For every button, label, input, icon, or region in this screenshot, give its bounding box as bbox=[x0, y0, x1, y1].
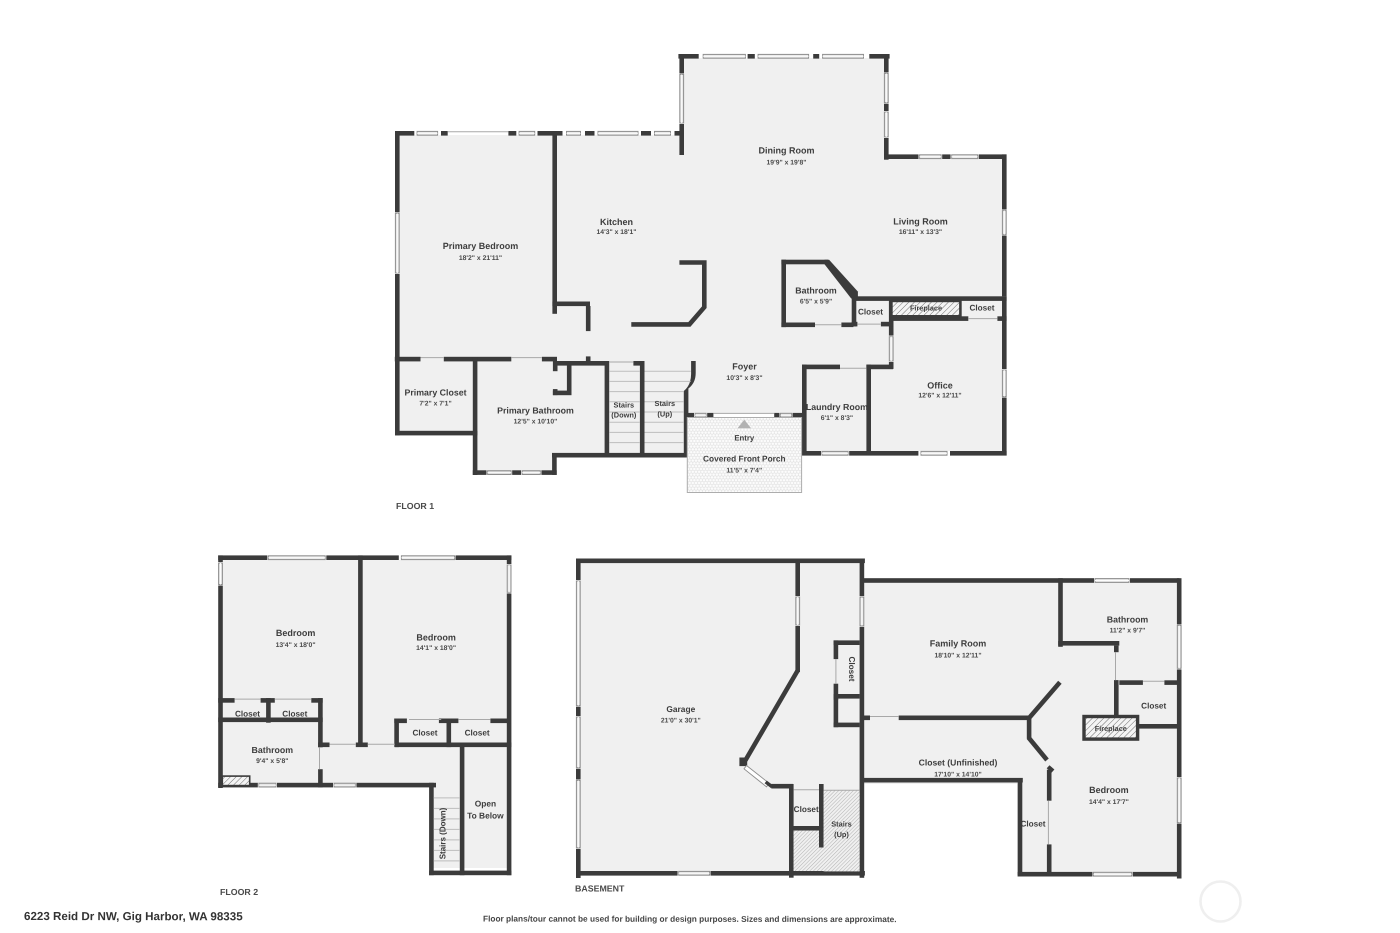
svg-text:(Up): (Up) bbox=[834, 830, 849, 839]
svg-text:Closet: Closet bbox=[235, 709, 260, 718]
svg-text:Closet (Unfinished): Closet (Unfinished) bbox=[919, 757, 998, 767]
svg-text:Closet: Closet bbox=[969, 303, 994, 312]
svg-text:Fireplace: Fireplace bbox=[910, 303, 942, 312]
svg-text:Bedroom: Bedroom bbox=[1089, 785, 1129, 795]
svg-text:Stairs: Stairs bbox=[831, 819, 852, 828]
svg-text:To Below: To Below bbox=[467, 810, 504, 820]
svg-text:11'2" x 9'7": 11'2" x 9'7" bbox=[1110, 627, 1146, 634]
svg-text:Stairs: Stairs bbox=[655, 399, 676, 408]
svg-text:Primary Bedroom: Primary Bedroom bbox=[443, 241, 519, 251]
svg-text:(Up): (Up) bbox=[657, 409, 672, 418]
svg-text:12'6" x 12'11": 12'6" x 12'11" bbox=[918, 392, 961, 399]
svg-text:Entry: Entry bbox=[734, 433, 755, 442]
svg-text:Primary Bathroom: Primary Bathroom bbox=[497, 405, 574, 415]
svg-text:14'4" x 17'7": 14'4" x 17'7" bbox=[1089, 799, 1129, 806]
svg-text:Primary Closet: Primary Closet bbox=[404, 387, 466, 397]
svg-text:Bathroom: Bathroom bbox=[252, 745, 294, 755]
svg-text:Closet: Closet bbox=[1141, 701, 1166, 710]
svg-text:Stairs (Down): Stairs (Down) bbox=[439, 807, 448, 859]
svg-text:6223 Reid Dr NW, Gig Harbor, W: 6223 Reid Dr NW, Gig Harbor, WA 98335 bbox=[24, 910, 243, 923]
svg-text:(Down): (Down) bbox=[611, 410, 637, 419]
svg-text:18'2" x 21'11": 18'2" x 21'11" bbox=[459, 255, 502, 262]
svg-text:Stairs: Stairs bbox=[614, 400, 635, 409]
svg-text:Living Room: Living Room bbox=[893, 216, 948, 226]
svg-text:Bathroom: Bathroom bbox=[1107, 614, 1149, 624]
svg-text:11'5" x 7'4": 11'5" x 7'4" bbox=[726, 467, 762, 474]
svg-text:14'3" x 18'1": 14'3" x 18'1" bbox=[597, 229, 637, 236]
svg-text:6'1" x 8'3": 6'1" x 8'3" bbox=[821, 415, 853, 422]
svg-text:FLOOR 2: FLOOR 2 bbox=[220, 887, 258, 897]
svg-text:16'11" x 13'3": 16'11" x 13'3" bbox=[899, 229, 942, 236]
svg-text:6'5" x 5'9": 6'5" x 5'9" bbox=[800, 298, 832, 305]
svg-text:Floor plans/tour cannot be use: Floor plans/tour cannot be used for buil… bbox=[483, 914, 897, 925]
svg-text:Fireplace: Fireplace bbox=[1095, 724, 1127, 733]
svg-text:13'4" x 18'0": 13'4" x 18'0" bbox=[276, 642, 316, 649]
svg-text:BASEMENT: BASEMENT bbox=[575, 884, 625, 894]
svg-text:Bedroom: Bedroom bbox=[276, 628, 316, 638]
svg-text:Office: Office bbox=[927, 380, 953, 390]
svg-text:12'5" x 10'10": 12'5" x 10'10" bbox=[514, 418, 558, 425]
svg-text:FLOOR 1: FLOOR 1 bbox=[396, 501, 434, 511]
svg-text:Kitchen: Kitchen bbox=[600, 217, 633, 227]
svg-text:9'4" x 5'8": 9'4" x 5'8" bbox=[256, 758, 288, 765]
svg-text:Open: Open bbox=[475, 798, 496, 808]
svg-text:Bathroom: Bathroom bbox=[795, 285, 837, 295]
svg-text:Covered Front Porch: Covered Front Porch bbox=[703, 453, 786, 463]
svg-text:Closet: Closet bbox=[412, 728, 437, 737]
svg-text:18'10" x 12'11": 18'10" x 12'11" bbox=[934, 652, 981, 659]
svg-text:Closet: Closet bbox=[847, 656, 856, 681]
svg-text:Closet: Closet bbox=[858, 307, 883, 316]
svg-text:Foyer: Foyer bbox=[732, 361, 757, 371]
svg-text:Bedroom: Bedroom bbox=[416, 632, 456, 642]
svg-text:Garage: Garage bbox=[666, 704, 695, 714]
svg-text:10'3" x 8'3": 10'3" x 8'3" bbox=[726, 375, 762, 382]
svg-text:Closet: Closet bbox=[282, 709, 307, 718]
svg-text:21'0" x 30'1": 21'0" x 30'1" bbox=[661, 717, 701, 724]
svg-text:Closet: Closet bbox=[794, 805, 819, 814]
svg-text:Dining Room: Dining Room bbox=[758, 145, 814, 155]
svg-text:17'10" x 14'10": 17'10" x 14'10" bbox=[934, 771, 981, 778]
svg-text:Closet: Closet bbox=[1020, 819, 1045, 828]
svg-text:Family Room: Family Room bbox=[930, 638, 987, 648]
svg-text:7'2" x 7'1": 7'2" x 7'1" bbox=[419, 400, 451, 407]
svg-text:19'9" x 19'8": 19'9" x 19'8" bbox=[767, 159, 807, 166]
svg-text:Laundry Room: Laundry Room bbox=[806, 402, 868, 412]
svg-text:14'1" x 18'0": 14'1" x 18'0" bbox=[416, 645, 456, 652]
svg-text:Closet: Closet bbox=[465, 728, 490, 737]
